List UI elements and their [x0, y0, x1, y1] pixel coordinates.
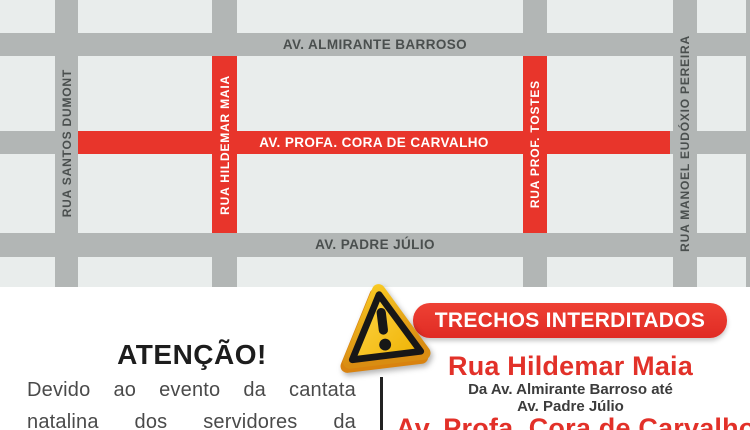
road-closure-infographic: AV. ALMIRANTE BARROSO AV. PADRE JÚLIO RU…: [0, 0, 750, 430]
street-av-almirante-barroso: AV. ALMIRANTE BARROSO: [0, 33, 750, 56]
column-divider: [380, 377, 383, 430]
street-map: AV. ALMIRANTE BARROSO AV. PADRE JÚLIO RU…: [0, 0, 750, 287]
street-label-rua-santos-dumont: RUA SANTOS DUMONT: [60, 69, 74, 217]
warning-triangle-icon: [335, 281, 431, 373]
notice-body-line: natalina dos servidores da: [27, 406, 356, 430]
street-label-av-cora-de-carvalho: AV. PROFA. CORA DE CARVALHO: [78, 131, 670, 154]
street-rua-santos-dumont: RUA SANTOS DUMONT: [55, 0, 78, 287]
street-rua-tostes-south-stub: [523, 257, 547, 287]
notice-body-line: Devido ao evento da cantata: [27, 374, 356, 406]
street-rua-hildemar-south-stub: [212, 257, 237, 287]
closed-street-rua-prof-tostes: RUA PROF. TOSTES: [523, 56, 547, 233]
closure-item-detail: Da Av. Almirante Barroso até: [408, 381, 733, 398]
closures-banner-label: TRECHOS INTERDITADOS: [435, 309, 705, 333]
closures-column: TRECHOS INTERDITADOS Rua Hildemar Maia D…: [408, 287, 733, 430]
street-label-rua-manoel-eudoxio-pereira: RUA MANOEL EUDÓXIO PEREIRA: [678, 35, 692, 252]
street-label-av-padre-julio: AV. PADRE JÚLIO: [0, 233, 750, 256]
attention-heading: ATENÇÃO!: [30, 339, 354, 371]
street-rua-manoel-eudoxio-pereira: RUA MANOEL EUDÓXIO PEREIRA: [673, 0, 697, 287]
closed-street-av-cora-de-carvalho: AV. PROFA. CORA DE CARVALHO: [78, 131, 670, 154]
notice-body-text: Devido ao evento da cantata natalina dos…: [27, 374, 356, 430]
closure-item-name: Av. Profa. Cora de Carvalho: [396, 413, 745, 430]
street-label-rua-prof-tostes: RUA PROF. TOSTES: [528, 80, 542, 208]
street-rua-hildemar-north-stub: [212, 0, 237, 33]
street-label-rua-hildemar-maia: RUA HILDEMAR MAIA: [218, 75, 232, 215]
closure-item-name: Rua Hildemar Maia: [408, 351, 733, 382]
street-rua-tostes-north-stub: [523, 0, 547, 33]
closed-street-rua-hildemar-maia: RUA HILDEMAR MAIA: [212, 56, 237, 233]
street-av-padre-julio: AV. PADRE JÚLIO: [0, 233, 750, 257]
closures-banner: TRECHOS INTERDITADOS: [413, 303, 727, 338]
street-label-av-almirante-barroso: AV. ALMIRANTE BARROSO: [0, 33, 750, 56]
